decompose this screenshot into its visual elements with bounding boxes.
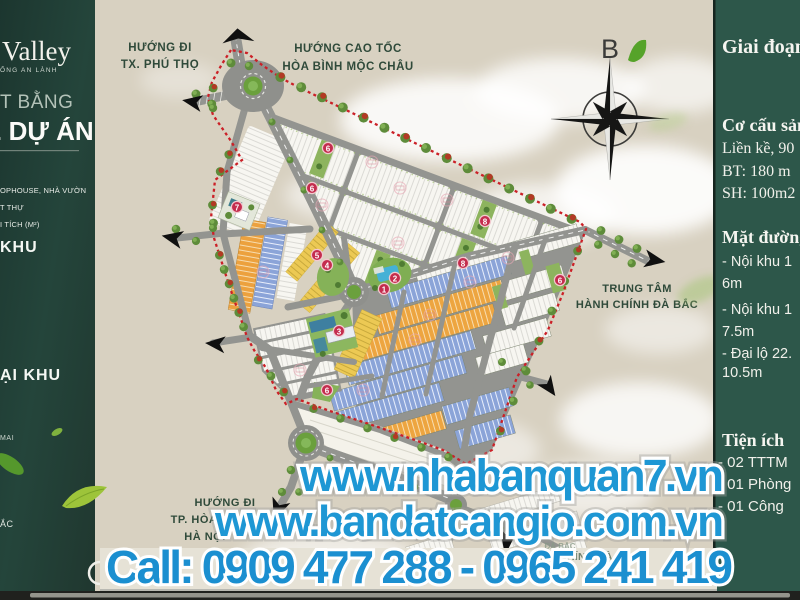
svg-text:7.5m: 7.5m bbox=[722, 324, 754, 340]
svg-text:6: 6 bbox=[310, 184, 315, 193]
svg-text:Cơ cấu sản: Cơ cấu sản bbox=[722, 115, 800, 135]
svg-text:www.bandatcangio.com.vn: www.bandatcangio.com.vn bbox=[214, 497, 724, 546]
svg-text:- 01 Công: - 01 Công bbox=[718, 498, 784, 515]
svg-text:B: B bbox=[601, 34, 619, 64]
svg-text:10.5m: 10.5m bbox=[722, 365, 762, 381]
svg-text:Liền kề, 90: Liền kề, 90 bbox=[722, 140, 794, 157]
svg-text:BT: 180 m: BT: 180 m bbox=[722, 163, 791, 180]
svg-text:Valley: Valley bbox=[2, 36, 71, 66]
svg-text:TRUNG TÂM: TRUNG TÂM bbox=[602, 282, 672, 295]
svg-text:I TÍCH (M²): I TÍCH (M²) bbox=[0, 220, 40, 229]
svg-text:ẮC: ẮC bbox=[0, 519, 14, 529]
svg-text:3: 3 bbox=[337, 327, 342, 336]
svg-text:- Nội khu 1: - Nội khu 1 bbox=[722, 254, 792, 270]
svg-text:TX. PHÚ THỌ: TX. PHÚ THỌ bbox=[121, 58, 199, 71]
svg-text:www.nhabanquan7.vn: www.nhabanquan7.vn bbox=[299, 450, 724, 501]
svg-text:HƯỚNG CAO TỐC: HƯỚNG CAO TỐC bbox=[294, 41, 402, 55]
svg-text:T BẰNG: T BẰNG bbox=[0, 91, 73, 113]
svg-text:6: 6 bbox=[558, 276, 563, 285]
svg-text:T THỰ: T THỰ bbox=[0, 203, 24, 212]
svg-text:1: 1 bbox=[382, 285, 387, 294]
svg-text:8: 8 bbox=[461, 259, 466, 268]
svg-text:MAI: MAI bbox=[0, 435, 14, 442]
svg-text:ẠI KHU: ẠI KHU bbox=[0, 367, 61, 384]
svg-text:6: 6 bbox=[325, 386, 330, 395]
svg-text:Giai đoạn: Giai đoạn bbox=[722, 36, 800, 58]
svg-text:4: 4 bbox=[325, 261, 330, 270]
svg-text:6: 6 bbox=[326, 144, 331, 153]
svg-text:2: 2 bbox=[393, 274, 398, 283]
svg-text:SH: 100m2: SH: 100m2 bbox=[722, 185, 795, 202]
svg-text:8: 8 bbox=[483, 217, 488, 226]
svg-text:- 02 TTTM: - 02 TTTM bbox=[718, 454, 788, 471]
svg-text:- Đại lộ 22.: - Đại lộ 22. bbox=[722, 346, 792, 362]
svg-text:Call: 0909 477 288 - 0965 241: Call: 0909 477 288 - 0965 241 419 bbox=[106, 541, 733, 593]
svg-text:Ể DỰ ÁN: Ể DỰ ÁN bbox=[0, 116, 94, 146]
svg-text:Mặt đường: Mặt đường bbox=[722, 227, 800, 247]
svg-text:OPHOUSE, NHÀ VƯỜN: OPHOUSE, NHÀ VƯỜN bbox=[0, 186, 86, 195]
svg-text:7: 7 bbox=[235, 203, 240, 212]
svg-text:- Nội khu 1: - Nội khu 1 bbox=[722, 302, 792, 318]
svg-text:- 01 Phòng: - 01 Phòng bbox=[718, 476, 791, 493]
svg-text:KHU: KHU bbox=[0, 239, 38, 256]
svg-text:Tiện ích: Tiện ích bbox=[722, 430, 784, 450]
svg-text:HÒA BÌNH MỘC CHÂU: HÒA BÌNH MỘC CHÂU bbox=[282, 60, 413, 73]
svg-text:HƯỚNG ĐI: HƯỚNG ĐI bbox=[128, 41, 192, 54]
svg-text:6m: 6m bbox=[722, 276, 742, 292]
svg-text:5: 5 bbox=[315, 251, 320, 260]
